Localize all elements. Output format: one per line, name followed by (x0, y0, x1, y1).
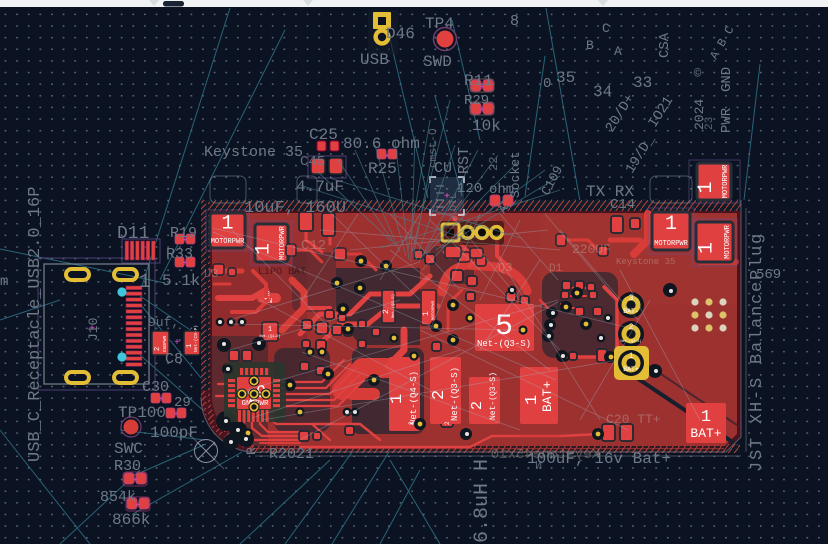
svg-text:1: 1 (422, 311, 431, 316)
svg-text:1: 1 (268, 326, 272, 334)
svg-text:2: 2 (154, 347, 162, 351)
svg-text:2: 2 (444, 421, 451, 425)
svg-text:U3: U3 (204, 267, 218, 281)
svg-text:2: 2 (469, 401, 486, 410)
svg-text:SWD: SWD (423, 53, 452, 71)
svg-text:D11: D11 (117, 224, 149, 244)
svg-text:0: 0 (543, 76, 551, 92)
svg-text:C: C (602, 21, 610, 36)
svg-text:B: B (586, 38, 594, 53)
svg-text:3: 3 (629, 294, 634, 303)
svg-text:Net-(Q3-S): Net-(Q3-S) (620, 339, 641, 344)
svg-text:GND: GND (719, 67, 735, 92)
svg-text:LiPO BAT: LiPO BAT (258, 266, 306, 278)
svg-text:R30: R30 (114, 458, 141, 475)
svg-text:BAT+: BAT+ (540, 381, 555, 412)
svg-text:D1: D1 (549, 263, 563, 275)
svg-text:8: 8 (510, 13, 519, 30)
svg-text:R19: R19 (170, 225, 197, 242)
svg-text:BAT+: BAT+ (690, 426, 721, 441)
svg-text:1: 1 (186, 344, 194, 348)
svg-text:TP4: TP4 (425, 15, 454, 33)
svg-text:TP100: TP100 (118, 404, 166, 422)
svg-text:m: m (0, 274, 8, 290)
svg-text:+: + (89, 324, 95, 335)
svg-text:6.8uH H: 6.8uH H (471, 459, 494, 543)
svg-text:5.1k: 5.1k (162, 272, 200, 290)
svg-text:35: 35 (556, 69, 575, 87)
svg-text:MOTORPWR: MOTORPWR (722, 164, 730, 198)
svg-text:C12: C12 (301, 238, 326, 254)
svg-text:+: + (174, 410, 179, 419)
svg-text:1: 1 (629, 352, 634, 361)
svg-text:RST: RST (456, 147, 473, 174)
svg-text:USB: USB (360, 51, 389, 69)
svg-text:R11: R11 (464, 72, 493, 90)
svg-text:R29: R29 (464, 93, 489, 109)
svg-text:+: + (133, 476, 138, 485)
svg-text:2: 2 (408, 421, 415, 425)
svg-text:9uf,: 9uf, (148, 315, 179, 330)
svg-text:10k: 10k (472, 117, 501, 135)
svg-text:Net-(Q3-S): Net-(Q3-S) (489, 372, 498, 420)
svg-text:1: 1 (701, 408, 711, 427)
svg-text:Keystone 35: Keystone 35 (616, 257, 675, 267)
svg-text:USB_C_Receptacle_USB2.0_16P: USB_C_Receptacle_USB2.0_16P (26, 187, 45, 462)
svg-text:+: + (174, 338, 180, 349)
svg-text:Net-(Q3-S): Net-(Q3-S) (477, 339, 531, 349)
svg-text:SWC: SWC (114, 440, 143, 458)
svg-text:©: © (694, 67, 702, 81)
svg-text:Keystone 35: Keystone 35 (204, 144, 303, 161)
svg-text:MOTORPWR: MOTORPWR (724, 224, 732, 258)
svg-text:C8: C8 (165, 351, 183, 368)
svg-text:1: 1 (388, 394, 407, 404)
svg-text:2: 2 (629, 323, 634, 332)
svg-text:Net-(Q3-S): Net-(Q3-S) (391, 294, 396, 318)
svg-text:R33: R33 (166, 246, 193, 263)
svg-text:220UF: 220UF (572, 242, 611, 257)
svg-text:1: 1 (665, 213, 677, 236)
svg-text:34: 34 (593, 83, 612, 101)
svg-text:10uF, 160U: 10uF, 160U (244, 199, 346, 218)
svg-text:569: 569 (756, 267, 781, 283)
svg-text:BAT+: BAT+ (623, 366, 639, 373)
svg-text:PWR: PWR (719, 107, 735, 133)
svg-text:22: 22 (487, 157, 501, 171)
svg-text:23: 23 (704, 117, 716, 130)
svg-text:1: 1 (696, 242, 719, 254)
svg-text:Net-(C8-P): Net-(C8-P) (193, 325, 199, 352)
svg-text:C30: C30 (142, 379, 169, 396)
svg-text:D46: D46 (386, 25, 415, 43)
svg-text:4.7uF: 4.7uF (296, 178, 344, 196)
svg-text:1: 1 (253, 243, 276, 255)
svg-text:MOTORPWR: MOTORPWR (654, 240, 688, 248)
svg-text:+: + (136, 501, 141, 510)
svg-text:1: 1 (139, 271, 151, 294)
svg-text:1: 1 (695, 181, 718, 193)
svg-text:C25: C25 (309, 126, 338, 144)
svg-text:Net-(Q3-S): Net-(Q3-S) (450, 367, 460, 421)
svg-text:Socket: Socket (508, 151, 523, 198)
svg-text:80.6 ohm: 80.6 ohm (343, 135, 420, 153)
svg-text:Q3: Q3 (498, 261, 512, 275)
svg-text:Keystone45x10: Keystone45x10 (491, 447, 600, 463)
svg-text:C20 TT+: C20 TT+ (606, 412, 661, 427)
svg-text:C45: C45 (300, 154, 325, 170)
svg-text:854k: 854k (100, 489, 136, 506)
svg-text:R: R (244, 447, 259, 455)
svg-text:29: 29 (174, 395, 191, 411)
svg-text:R25: R25 (368, 160, 397, 178)
svg-text:2: 2 (382, 309, 391, 314)
svg-text:MOTORPWR: MOTORPWR (211, 238, 245, 246)
svg-text:33: 33 (633, 74, 652, 92)
svg-text:cmst-O: cmst-O (428, 128, 440, 168)
svg-text:100pF: 100pF (150, 424, 198, 442)
svg-text:866k: 866k (112, 511, 150, 529)
svg-text:120: 120 (457, 181, 482, 197)
svg-text:1: 1 (221, 213, 233, 236)
svg-text:C14: C14 (610, 197, 635, 213)
svg-text:CSA: CSA (657, 32, 673, 58)
svg-text:A: A (614, 44, 622, 59)
svg-text:+: + (159, 395, 164, 404)
svg-text:GNDPWR: GNDPWR (162, 335, 168, 352)
svg-text:R2021: R2021 (269, 446, 314, 463)
